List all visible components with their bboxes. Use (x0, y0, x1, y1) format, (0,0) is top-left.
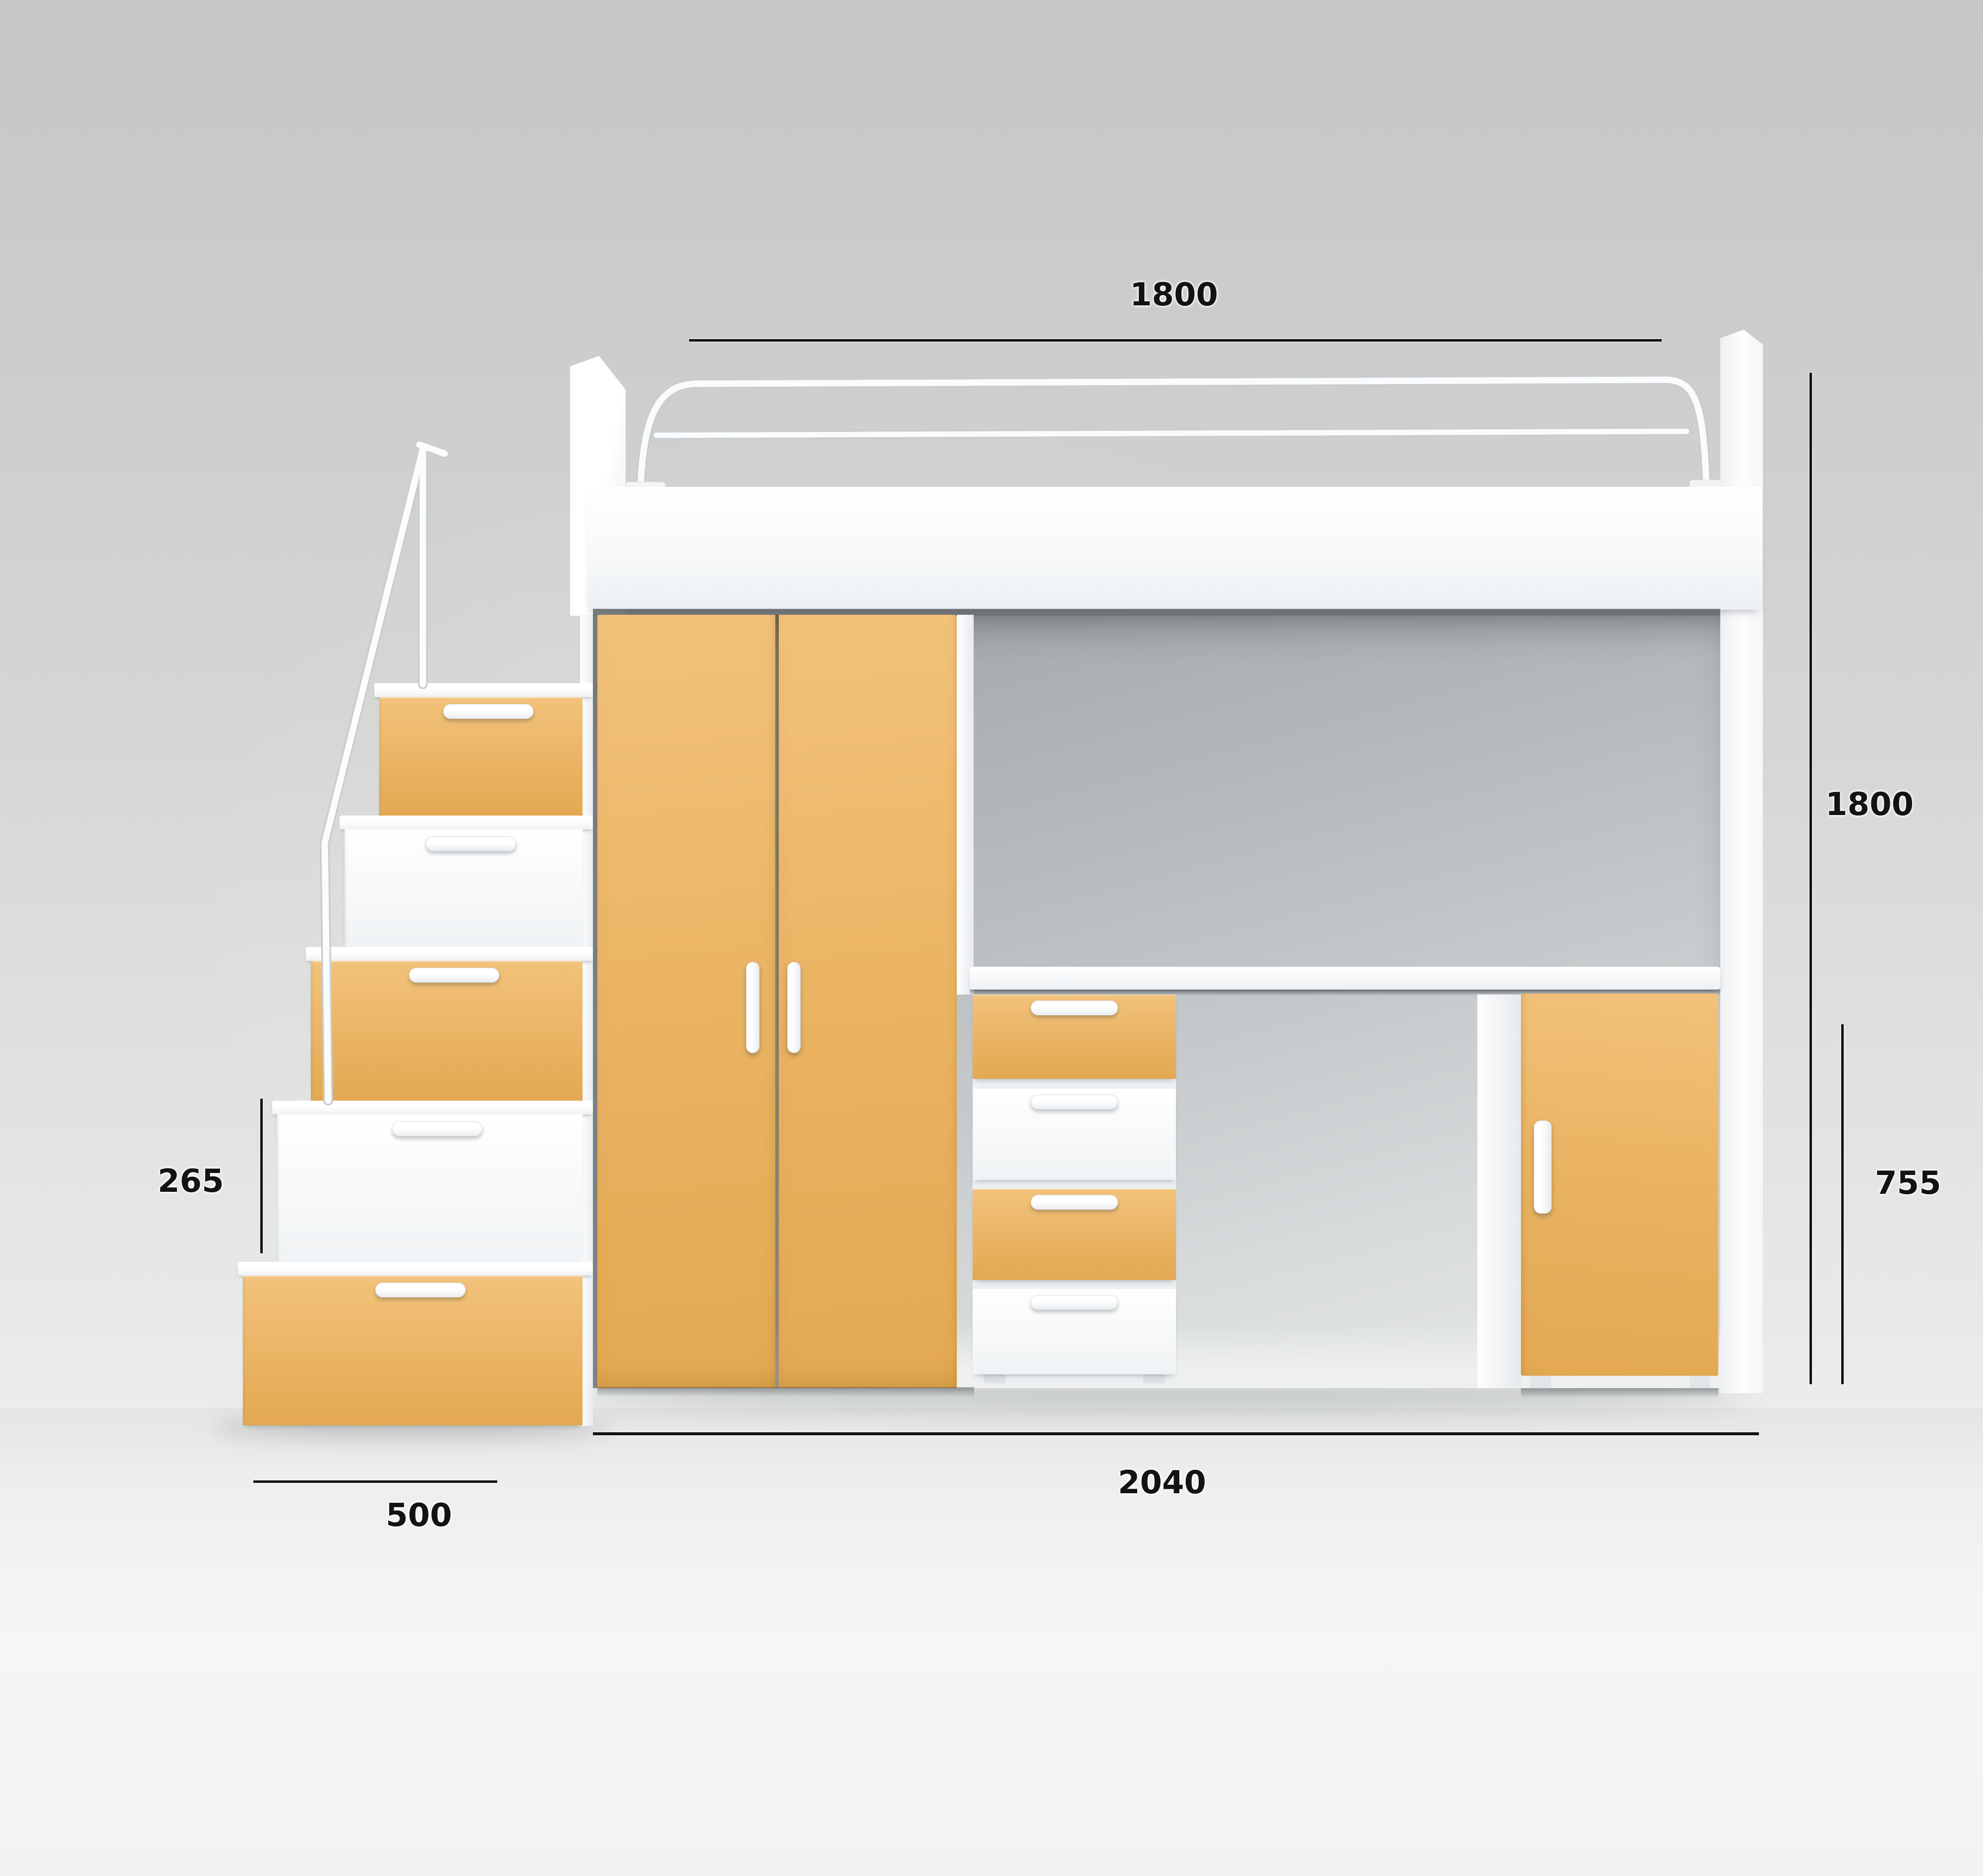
pedestal-foot-left (984, 1374, 1005, 1383)
desk-drawer-unit (973, 995, 1176, 1383)
stair-drawer (243, 1276, 583, 1425)
desk-drawer (973, 1089, 1176, 1180)
wardrobe-base-shadow (597, 1387, 974, 1397)
desk-drawer-handle (1031, 1095, 1118, 1110)
dim-label-stair-depth: 500 (386, 1498, 452, 1533)
cabinet-side-panel (1477, 995, 1521, 1388)
desk-drawer-handle (1031, 1195, 1118, 1210)
desk-drawer-handle (1031, 1000, 1118, 1015)
stair-handrail (213, 426, 471, 1160)
dim-line-base-width (593, 1432, 1759, 1435)
cabinet-foot-left (1530, 1376, 1551, 1390)
dim-line-desk-height (1841, 1024, 1844, 1384)
dim-label-desk-height: 755 (1875, 1166, 1941, 1201)
dim-label-top-width: 1800 (1130, 278, 1218, 312)
pedestal-foot-right (1143, 1374, 1165, 1383)
wardrobe-door-right-handle (787, 962, 801, 1053)
wardrobe-door-right (779, 615, 957, 1388)
bed-front-panel (587, 487, 1762, 610)
cabinet-foot-right (1690, 1376, 1710, 1390)
stair-step-board (238, 1262, 593, 1276)
dim-line-top-width (689, 339, 1662, 342)
dim-label-step-rise: 265 (158, 1164, 224, 1199)
scene: 1800 1800 755 265 500 2040 (0, 0, 1983, 1876)
cabinet-base-shadow (1521, 1388, 1718, 1398)
dim-label-base-width: 2040 (1118, 1466, 1206, 1500)
wardrobe-door-gap (775, 615, 779, 1388)
desk-drawer (973, 1189, 1176, 1280)
wardrobe-side-panel-right (957, 615, 974, 995)
dim-line-stair-depth (253, 1480, 497, 1483)
desk-drawer (973, 995, 1176, 1079)
dim-line-step-rise (260, 1099, 263, 1253)
wardrobe-door-left-handle (746, 962, 759, 1053)
desk-top (970, 967, 1720, 990)
desk-drawer-handle (1031, 1295, 1118, 1310)
cabinet-door-handle (1534, 1120, 1552, 1214)
stair-drawer-handle (375, 1283, 466, 1297)
desk-drawer (973, 1289, 1176, 1374)
dim-label-right-height: 1800 (1825, 787, 1914, 822)
stair-wardrobe-seam (593, 615, 597, 1388)
dim-line-right-height (1809, 373, 1812, 1384)
